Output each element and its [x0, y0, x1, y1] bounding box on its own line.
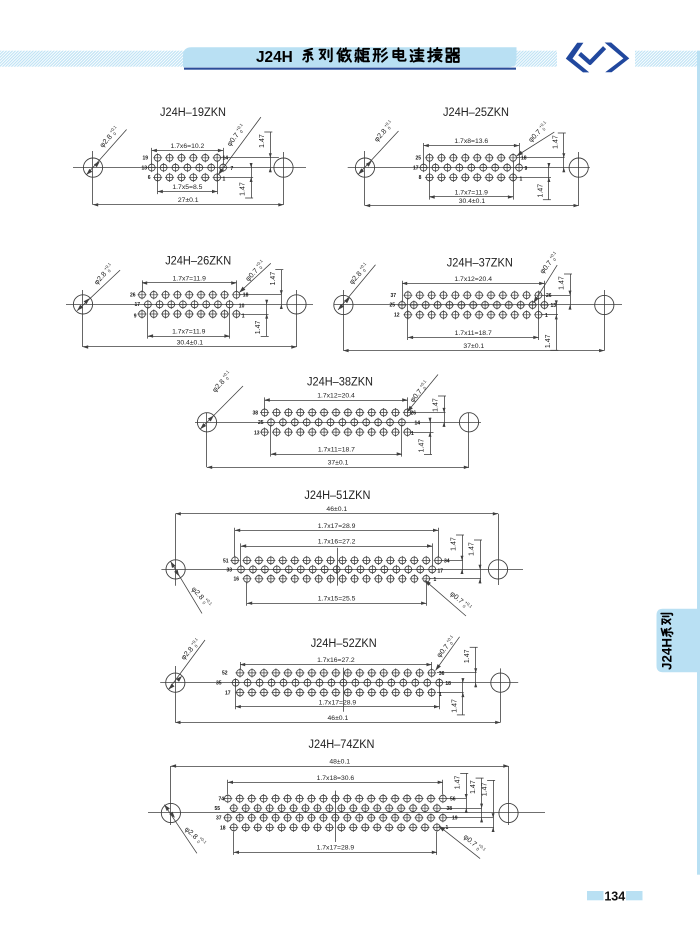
- svg-text:1.7x7=11.9: 1.7x7=11.9: [172, 328, 206, 335]
- svg-text:1.47: 1.47: [469, 542, 476, 556]
- svg-text:9: 9: [134, 313, 137, 319]
- svg-text:1: 1: [411, 431, 414, 437]
- svg-text:1.47: 1.47: [451, 537, 458, 551]
- svg-text:37: 37: [216, 816, 222, 822]
- svg-text:1.7x11=18.7: 1.7x11=18.7: [318, 446, 355, 453]
- svg-text:33: 33: [226, 567, 232, 573]
- svg-text:1: 1: [446, 825, 449, 831]
- svg-text:7: 7: [231, 166, 234, 172]
- svg-text:34: 34: [444, 559, 450, 565]
- svg-text:1.7x17=28.9: 1.7x17=28.9: [319, 699, 357, 706]
- svg-text:134: 134: [604, 889, 625, 903]
- svg-text:25: 25: [258, 420, 264, 426]
- svg-text:38: 38: [252, 410, 258, 416]
- svg-text:1.47: 1.47: [470, 780, 477, 794]
- svg-text:1.47: 1.47: [482, 782, 489, 796]
- svg-text:J24H–51ZKN: J24H–51ZKN: [304, 488, 370, 502]
- svg-text:56: 56: [450, 796, 456, 802]
- svg-text:1.47: 1.47: [537, 184, 544, 198]
- svg-text:1.47: 1.47: [419, 439, 426, 453]
- svg-text:1.7x11=18.7: 1.7x11=18.7: [455, 330, 492, 337]
- svg-text:9: 9: [525, 166, 528, 172]
- svg-text:1.7x6=10.2: 1.7x6=10.2: [170, 143, 204, 150]
- svg-text:38: 38: [447, 806, 453, 812]
- svg-text:26: 26: [546, 293, 552, 299]
- svg-text:J24H–38ZKN: J24H–38ZKN: [307, 374, 373, 388]
- svg-text:48±0.1: 48±0.1: [329, 758, 350, 765]
- svg-text:19: 19: [452, 816, 458, 822]
- svg-text:1: 1: [223, 177, 226, 183]
- svg-text:J24H–26ZKN: J24H–26ZKN: [165, 254, 231, 268]
- svg-text:12: 12: [394, 313, 400, 319]
- svg-text:1.47: 1.47: [464, 649, 471, 663]
- svg-text:37: 37: [390, 293, 396, 299]
- svg-text:1.7x17=28.9: 1.7x17=28.9: [318, 523, 356, 530]
- svg-text:55: 55: [214, 806, 220, 812]
- svg-text:8: 8: [419, 175, 422, 181]
- svg-text:46±0.1: 46±0.1: [326, 506, 347, 513]
- svg-text:18: 18: [521, 156, 527, 162]
- svg-text:1.7x16=27.2: 1.7x16=27.2: [318, 539, 356, 546]
- svg-text:1.7x15=25.5: 1.7x15=25.5: [318, 596, 356, 603]
- svg-text:1.7x5=8.5: 1.7x5=8.5: [172, 184, 202, 191]
- svg-text:30.4±0.1: 30.4±0.1: [459, 198, 486, 205]
- svg-text:25: 25: [389, 303, 395, 309]
- svg-text:17: 17: [225, 691, 231, 697]
- svg-text:1.47: 1.47: [545, 334, 552, 348]
- svg-text:1.7x16=27.2: 1.7x16=27.2: [317, 657, 355, 664]
- svg-text:14: 14: [223, 156, 229, 162]
- svg-text:1: 1: [545, 313, 548, 319]
- svg-text:J24H: J24H: [256, 49, 293, 66]
- svg-text:1.47: 1.47: [240, 182, 247, 196]
- svg-text:19: 19: [142, 156, 148, 162]
- svg-text:J24H–19ZKN: J24H–19ZKN: [160, 105, 226, 119]
- svg-text:1.47: 1.47: [559, 276, 566, 290]
- svg-text:36: 36: [439, 671, 445, 677]
- svg-text:18: 18: [445, 681, 451, 687]
- svg-text:17: 17: [134, 302, 140, 308]
- svg-text:1.47: 1.47: [455, 775, 462, 789]
- svg-text:26: 26: [130, 293, 136, 299]
- svg-text:13: 13: [551, 303, 557, 309]
- svg-text:35: 35: [216, 680, 222, 686]
- svg-text:1: 1: [439, 692, 442, 698]
- svg-text:37±0.1: 37±0.1: [328, 460, 349, 467]
- svg-text:17: 17: [438, 569, 444, 575]
- svg-text:1: 1: [520, 177, 523, 183]
- svg-text:1.7x8=13.6: 1.7x8=13.6: [454, 138, 488, 145]
- svg-text:37±0.1: 37±0.1: [463, 343, 484, 350]
- svg-text:1.47: 1.47: [270, 272, 277, 286]
- svg-text:1.7x17=28.9: 1.7x17=28.9: [317, 845, 355, 852]
- svg-text:26: 26: [411, 410, 417, 416]
- svg-text:46±0.1: 46±0.1: [328, 715, 349, 722]
- svg-text:1.47: 1.47: [259, 134, 266, 148]
- svg-text:J24H–74ZKN: J24H–74ZKN: [309, 737, 375, 751]
- svg-text:1.7x12=20.4: 1.7x12=20.4: [317, 393, 355, 400]
- svg-text:1: 1: [242, 313, 245, 319]
- svg-text:6: 6: [148, 175, 151, 181]
- svg-text:J24H: J24H: [660, 638, 675, 670]
- svg-text:1.47: 1.47: [255, 320, 262, 334]
- svg-text:1.7x7=11.9: 1.7x7=11.9: [455, 190, 489, 197]
- svg-text:52: 52: [222, 671, 228, 677]
- svg-text:1: 1: [434, 577, 437, 583]
- svg-text:1.47: 1.47: [552, 135, 559, 149]
- svg-text:27±0.1: 27±0.1: [178, 197, 199, 204]
- svg-text:10: 10: [239, 304, 245, 310]
- svg-text:J24H–37ZKN: J24H–37ZKN: [447, 255, 513, 269]
- svg-text:1.7x18=30.6: 1.7x18=30.6: [317, 775, 355, 782]
- svg-text:1.47: 1.47: [433, 398, 440, 412]
- svg-text:J24H–25ZKN: J24H–25ZKN: [443, 105, 509, 119]
- svg-text:1.7x12=20.4: 1.7x12=20.4: [454, 276, 492, 283]
- svg-text:17: 17: [413, 165, 419, 171]
- svg-text:J24H–52ZKN: J24H–52ZKN: [311, 636, 377, 650]
- svg-text:30.4±0.1: 30.4±0.1: [177, 339, 204, 346]
- svg-text:13: 13: [141, 165, 147, 171]
- svg-text:18: 18: [220, 825, 226, 831]
- svg-text:18: 18: [243, 293, 249, 299]
- svg-text:16: 16: [233, 577, 239, 583]
- svg-text:25: 25: [415, 156, 421, 162]
- svg-text:51: 51: [223, 558, 229, 564]
- svg-text:14: 14: [415, 421, 421, 427]
- svg-text:1.7x7=11.9: 1.7x7=11.9: [173, 276, 207, 283]
- svg-text:1.47: 1.47: [451, 699, 458, 713]
- svg-text:13: 13: [254, 430, 260, 436]
- svg-text:74: 74: [218, 796, 224, 802]
